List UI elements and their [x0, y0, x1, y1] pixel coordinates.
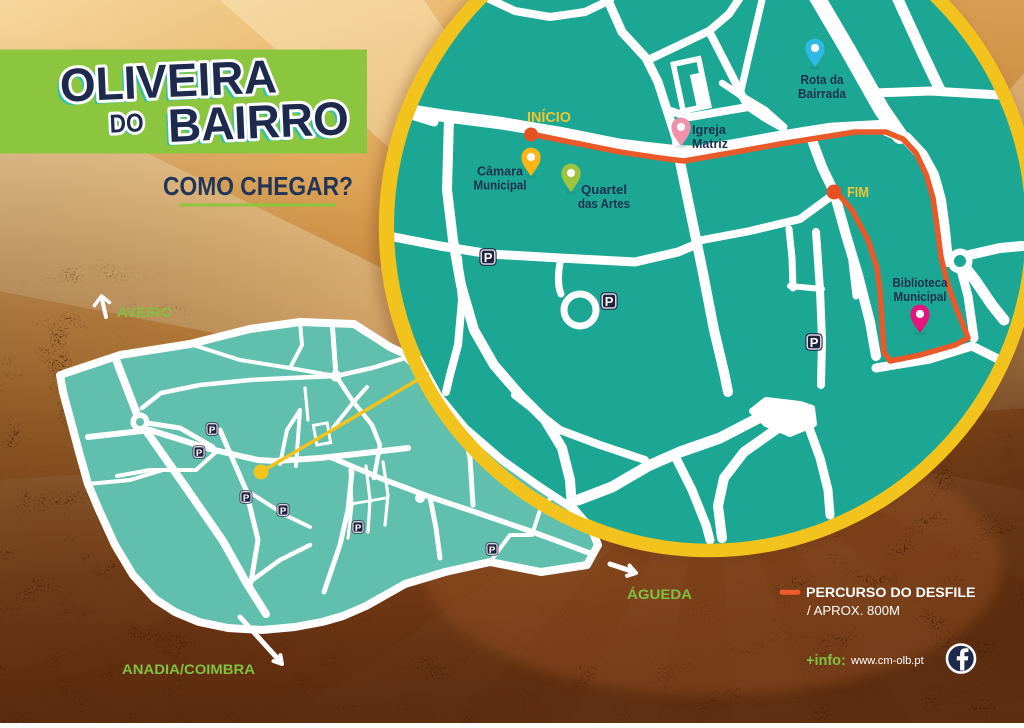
svg-text:das Artes: das Artes: [578, 196, 630, 211]
svg-text:ANADIA/COIMBRA: ANADIA/COIMBRA: [122, 661, 255, 677]
svg-text:Rota da: Rota da: [801, 72, 845, 87]
svg-text:FIM: FIM: [847, 185, 869, 201]
svg-text:Municipal: Municipal: [474, 178, 527, 193]
svg-text:/ APROX. 800M: / APROX. 800M: [807, 603, 900, 618]
svg-text:COMO CHEGAR?: COMO CHEGAR?: [163, 171, 353, 201]
svg-text:AVEIRO: AVEIRO: [117, 304, 172, 320]
svg-text:Bairrada: Bairrada: [798, 86, 847, 101]
svg-text:Matriz: Matriz: [692, 136, 728, 151]
svg-text:INÍCIO: INÍCIO: [527, 109, 571, 126]
svg-text:Municipal: Municipal: [894, 289, 947, 304]
svg-text:BAIRRO: BAIRRO: [167, 91, 350, 152]
svg-text:+info:: +info:: [806, 653, 846, 669]
svg-text:DO: DO: [109, 107, 144, 138]
svg-text:Biblioteca: Biblioteca: [893, 275, 949, 290]
svg-text:Quartel: Quartel: [581, 182, 627, 197]
svg-text:Igreja: Igreja: [692, 122, 727, 137]
svg-text:Câmara: Câmara: [477, 164, 524, 179]
svg-text:PERCURSO DO DESFILE: PERCURSO DO DESFILE: [806, 585, 975, 601]
svg-text:www.cm-olb.pt: www.cm-olb.pt: [850, 655, 925, 667]
svg-text:ÁGUEDA: ÁGUEDA: [627, 586, 692, 602]
